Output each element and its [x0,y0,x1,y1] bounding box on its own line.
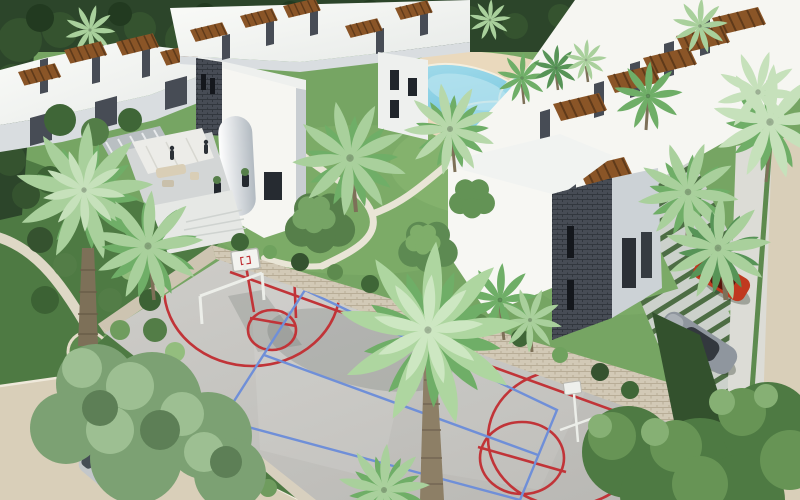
tower-window [567,280,574,310]
stone-tower-texture [552,178,612,340]
person [170,146,174,160]
stone-tower-texture [196,58,222,136]
villa-door [264,172,282,200]
tower-window [567,226,574,258]
tower-window [210,78,215,94]
glass-door [641,232,652,278]
aerial-scene [0,0,800,500]
aerial-render [0,0,800,500]
person [204,140,208,154]
tower-window [201,74,206,90]
glass-door [622,238,636,288]
backboard [563,381,582,395]
